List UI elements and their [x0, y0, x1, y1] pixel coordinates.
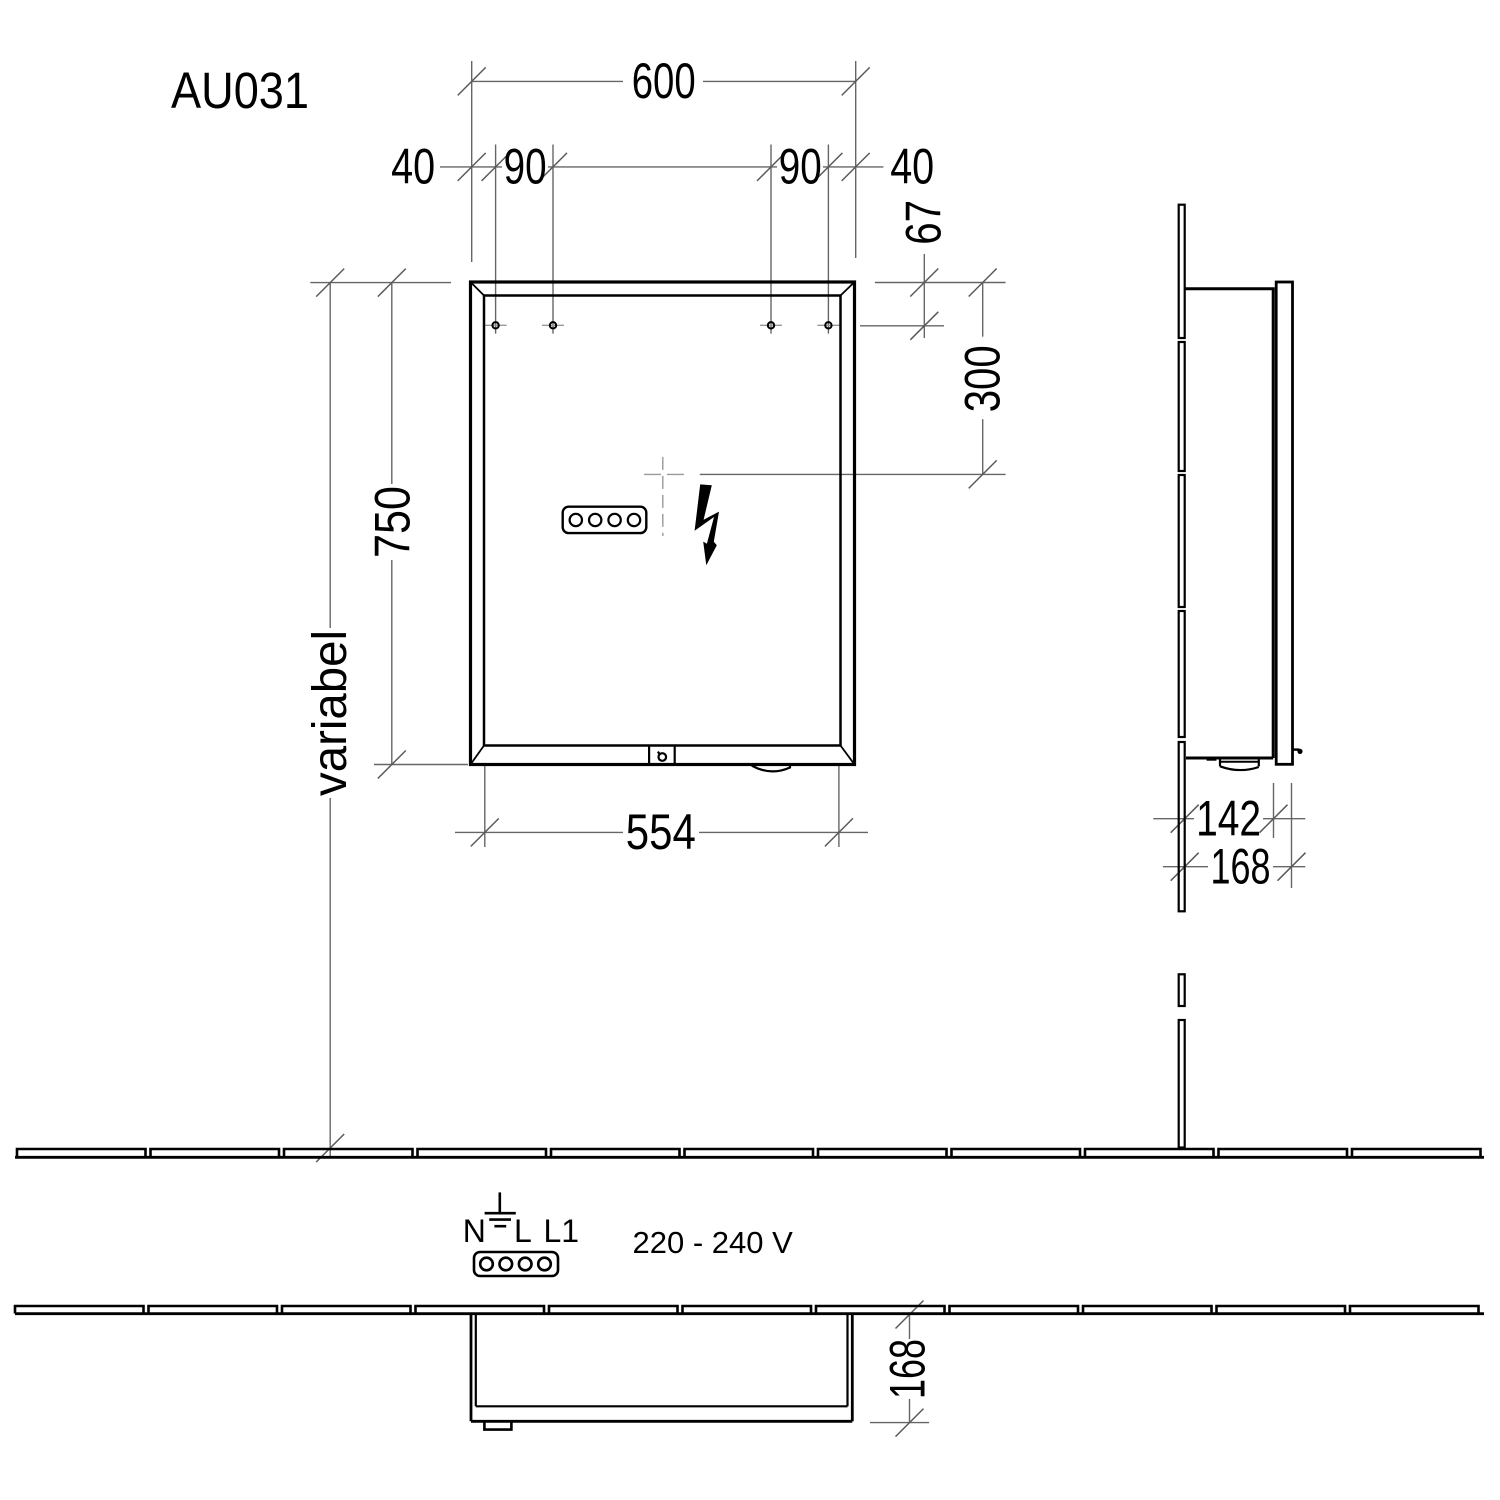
svg-text:AU031: AU031 [171, 62, 309, 119]
svg-text:300: 300 [955, 345, 1011, 412]
svg-text:168: 168 [880, 1339, 936, 1399]
svg-text:40: 40 [391, 139, 435, 195]
svg-text:L1: L1 [544, 1213, 580, 1249]
svg-text:554: 554 [626, 804, 696, 860]
svg-text:750: 750 [365, 486, 421, 558]
svg-text:67: 67 [896, 200, 952, 245]
svg-text:N: N [463, 1213, 486, 1249]
svg-text:168: 168 [1211, 839, 1271, 895]
svg-text:90: 90 [779, 139, 822, 195]
svg-text:L: L [514, 1213, 532, 1249]
svg-text:90: 90 [504, 139, 547, 195]
svg-text:variabel: variabel [304, 630, 357, 796]
svg-text:220 - 240 V: 220 - 240 V [633, 1225, 794, 1260]
svg-text:600: 600 [632, 53, 696, 109]
svg-text:40: 40 [890, 139, 934, 195]
